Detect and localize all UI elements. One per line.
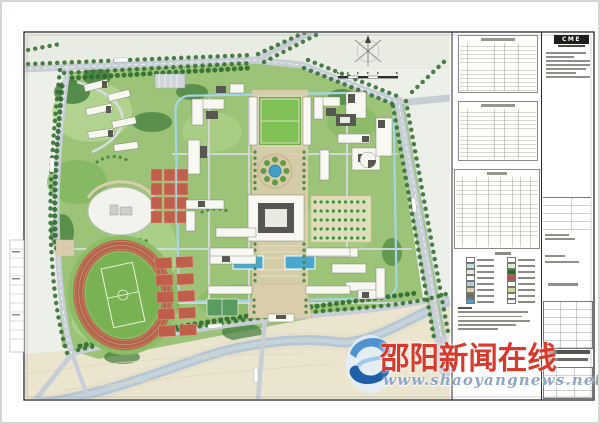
orchard	[311, 196, 371, 242]
legend-item	[507, 276, 541, 280]
legend-item	[466, 276, 500, 280]
legend-item	[507, 294, 541, 298]
registration-strip	[10, 240, 24, 352]
watermark-site-url: www.shaoyangnews.net	[383, 371, 600, 389]
legend-item	[507, 300, 541, 304]
table-title-bar	[481, 104, 515, 107]
legend-item	[507, 258, 541, 262]
titleblock-text-line	[545, 238, 575, 240]
legend-item	[466, 300, 500, 304]
note-line	[458, 307, 472, 309]
note-line	[458, 324, 516, 326]
note-line	[458, 320, 530, 322]
titleblock-text-line	[546, 76, 590, 78]
legend-item	[466, 270, 500, 274]
table-grid	[460, 109, 536, 159]
legend-block	[466, 252, 540, 302]
titleblock-text-line	[545, 261, 579, 263]
legend-item	[466, 294, 500, 298]
legend-item	[466, 264, 500, 268]
legend-item	[507, 264, 541, 268]
indicator-table-1	[458, 35, 538, 93]
titleblock-text-line	[546, 68, 586, 70]
legend-title-bar	[495, 252, 511, 255]
indicator-table-3	[454, 169, 540, 249]
entrance-plaza	[248, 284, 312, 318]
titleblock-text-line	[546, 64, 590, 66]
titleblock-text-line	[546, 60, 590, 62]
table-title-bar	[481, 38, 515, 41]
titleblock-text-line	[545, 255, 565, 257]
indicator-table-2	[458, 101, 538, 161]
stadium-ellipse	[88, 182, 154, 235]
cme-logo-subline	[558, 45, 585, 47]
table-grid	[456, 177, 538, 247]
titleblock-mid-table	[543, 197, 591, 230]
legend-grid	[466, 258, 540, 304]
legend-item	[466, 258, 500, 262]
titleblock-text-line	[546, 72, 576, 74]
note-line	[458, 316, 522, 318]
legend-item	[507, 282, 541, 286]
pool-east	[285, 256, 315, 269]
titleblock-text-line	[546, 56, 574, 58]
legend-item	[466, 288, 500, 292]
titleblock-text-line	[546, 52, 586, 54]
titleblock-text-line	[548, 283, 578, 286]
note-line	[458, 311, 528, 313]
scanned-drawing-page: CME 邵阳新闻在线 www.shaoyangnews.net	[0, 0, 600, 424]
notes-block	[458, 307, 538, 333]
legend-item	[507, 288, 541, 292]
titleblock-text-line	[545, 234, 569, 236]
table-grid	[460, 43, 536, 91]
central-pond	[269, 165, 281, 177]
legend-item	[507, 270, 541, 274]
legend-item	[466, 282, 500, 286]
note-line	[458, 328, 498, 330]
table-title-bar	[487, 172, 507, 175]
cme-logo: CME	[554, 35, 589, 44]
